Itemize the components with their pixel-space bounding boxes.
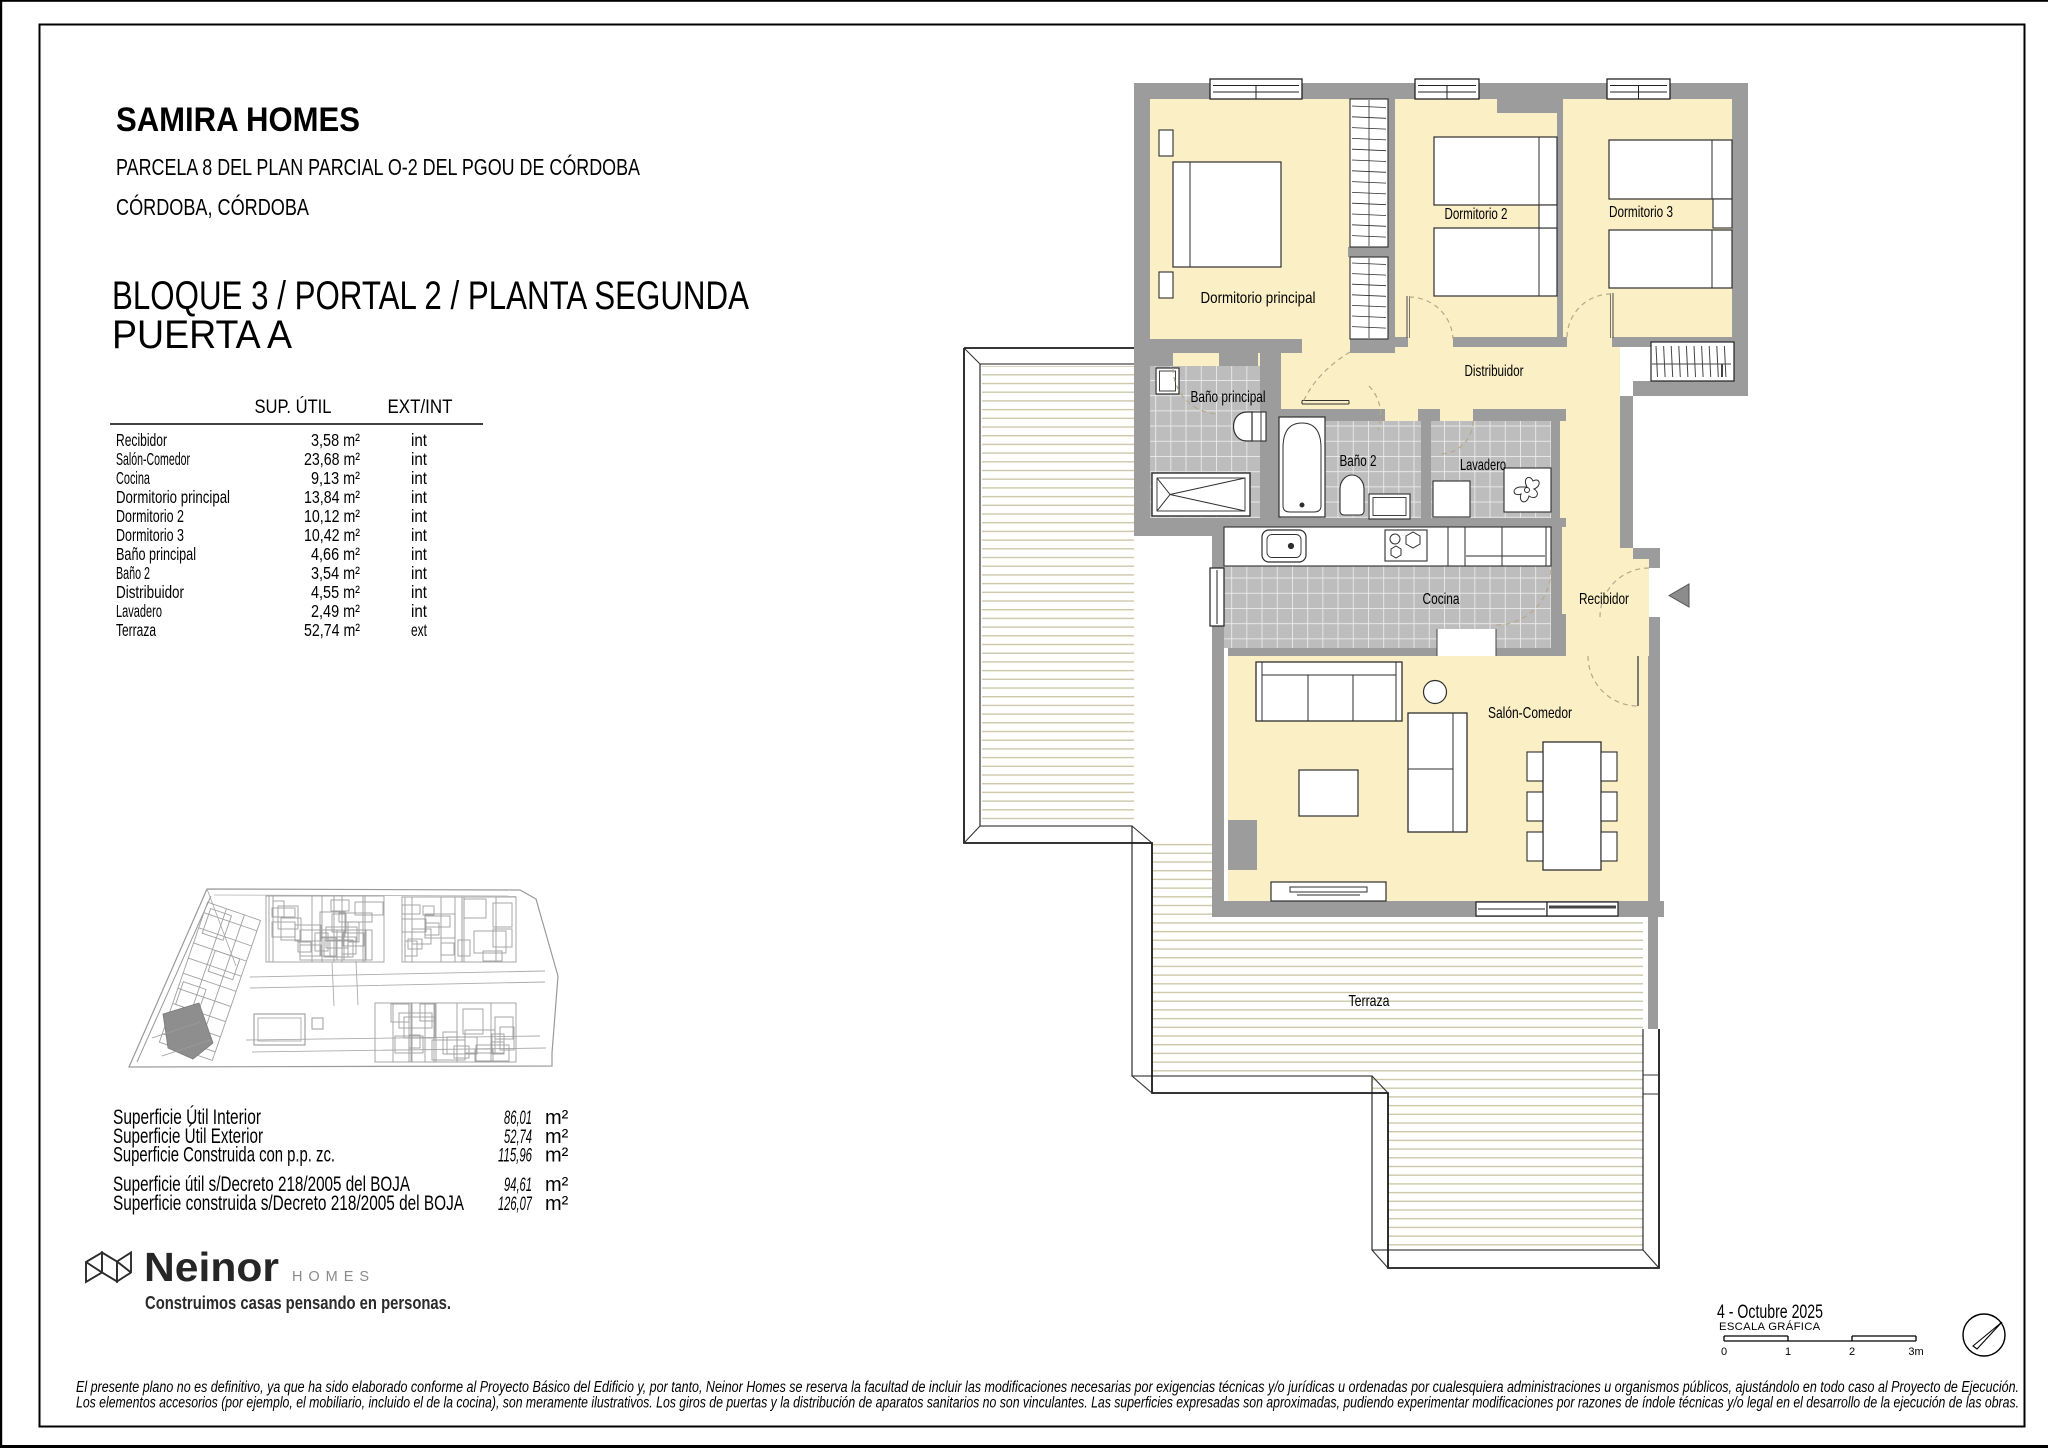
svg-text:SAMIRA HOMES: SAMIRA HOMES	[116, 101, 360, 139]
svg-text:Recibidor: Recibidor	[1579, 591, 1629, 608]
svg-text:Cocina: Cocina	[116, 468, 150, 488]
svg-text:1: 1	[1785, 1346, 1791, 1358]
svg-text:int: int	[411, 487, 427, 507]
svg-text:int: int	[411, 563, 427, 583]
svg-text:3,58 m²: 3,58 m²	[311, 430, 360, 450]
svg-text:Cocina: Cocina	[1423, 591, 1460, 608]
svg-text:Baño 2: Baño 2	[1340, 453, 1377, 470]
svg-text:4 - Octubre 2025: 4 - Octubre 2025	[1717, 1301, 1823, 1323]
svg-text:Neinor: Neinor	[144, 1244, 279, 1290]
svg-text:Salón-Comedor: Salón-Comedor	[116, 449, 190, 469]
svg-text:3m: 3m	[1908, 1346, 1923, 1358]
svg-text:int: int	[411, 601, 427, 621]
svg-text:2: 2	[1849, 1346, 1855, 1358]
svg-text:PUERTA A: PUERTA A	[112, 313, 293, 357]
svg-text:Baño 2: Baño 2	[116, 563, 150, 583]
svg-text:SUP. ÚTIL: SUP. ÚTIL	[255, 396, 332, 418]
svg-text:Construimos casas pensando en: Construimos casas pensando en personas.	[145, 1292, 451, 1313]
svg-text:23,68 m²: 23,68 m²	[304, 449, 360, 469]
svg-text:El presente plano no es defini: El presente plano no es definitivo, ya q…	[76, 1379, 2019, 1396]
svg-text:m²: m²	[545, 1145, 569, 1167]
svg-text:86,01: 86,01	[504, 1108, 532, 1129]
svg-text:Terraza: Terraza	[1349, 993, 1390, 1010]
svg-text:int: int	[411, 449, 427, 469]
svg-text:BLOQUE 3 / PORTAL 2 / PLANTA S: BLOQUE 3 / PORTAL 2 / PLANTA SEGUNDA	[112, 274, 750, 318]
svg-text:0: 0	[1721, 1346, 1727, 1358]
svg-text:Lavadero: Lavadero	[116, 601, 162, 621]
svg-text:Dormitorio principal: Dormitorio principal	[1201, 290, 1316, 307]
svg-text:int: int	[411, 468, 427, 488]
svg-text:PARCELA 8 DEL PLAN PARCIAL O-2: PARCELA 8 DEL PLAN PARCIAL O-2 DEL PGOU …	[116, 154, 641, 180]
svg-text:ext: ext	[411, 620, 427, 640]
svg-text:52,74 m²: 52,74 m²	[304, 620, 360, 640]
svg-text:int: int	[411, 544, 427, 564]
svg-text:Baño principal: Baño principal	[116, 544, 196, 564]
svg-text:Recibidor: Recibidor	[116, 430, 167, 450]
svg-text:int: int	[411, 506, 427, 526]
svg-text:int: int	[411, 582, 427, 602]
svg-text:2,49 m²: 2,49 m²	[311, 601, 360, 621]
svg-text:Superficie Construida con p.p.: Superficie Construida con p.p. zc.	[113, 1144, 335, 1167]
svg-text:Dormitorio 3: Dormitorio 3	[116, 525, 184, 545]
svg-text:Dormitorio principal: Dormitorio principal	[116, 487, 230, 507]
svg-text:int: int	[411, 430, 427, 450]
svg-text:m²: m²	[545, 1193, 569, 1215]
svg-text:Terraza: Terraza	[116, 620, 156, 640]
svg-text:10,12 m²: 10,12 m²	[304, 506, 360, 526]
svg-text:Los elementos accesorios (por: Los elementos accesorios (por ejemplo, e…	[76, 1395, 2019, 1412]
svg-text:Dormitorio 2: Dormitorio 2	[116, 506, 184, 526]
svg-text:Distribuidor: Distribuidor	[1465, 363, 1524, 380]
svg-text:CÓRDOBA, CÓRDOBA: CÓRDOBA, CÓRDOBA	[116, 194, 310, 220]
svg-text:13,84 m²: 13,84 m²	[304, 487, 360, 507]
svg-text:9,13 m²: 9,13 m²	[311, 468, 360, 488]
svg-text:115,96: 115,96	[498, 1146, 532, 1167]
svg-text:Baño principal: Baño principal	[1191, 389, 1266, 406]
svg-text:Distribuidor: Distribuidor	[116, 582, 184, 602]
svg-text:ESCALA GRÁFICA: ESCALA GRÁFICA	[1719, 1320, 1821, 1333]
svg-text:Dormitorio 3: Dormitorio 3	[1609, 204, 1673, 221]
svg-text:int: int	[411, 525, 427, 545]
svg-text:Salón-Comedor: Salón-Comedor	[1488, 705, 1572, 722]
svg-text:4,66 m²: 4,66 m²	[311, 544, 360, 564]
svg-text:3,54 m²: 3,54 m²	[311, 563, 360, 583]
svg-text:Dormitorio 2: Dormitorio 2	[1445, 206, 1508, 223]
svg-text:126,07: 126,07	[498, 1194, 533, 1215]
svg-text:10,42 m²: 10,42 m²	[304, 525, 360, 545]
svg-text:4,55 m²: 4,55 m²	[311, 582, 360, 602]
svg-text:EXT/INT: EXT/INT	[388, 397, 453, 418]
svg-text:Lavadero: Lavadero	[1460, 457, 1506, 474]
svg-text:94,61: 94,61	[504, 1175, 532, 1196]
svg-text:Superficie construida s/Decret: Superficie construida s/Decreto 218/2005…	[113, 1192, 464, 1215]
